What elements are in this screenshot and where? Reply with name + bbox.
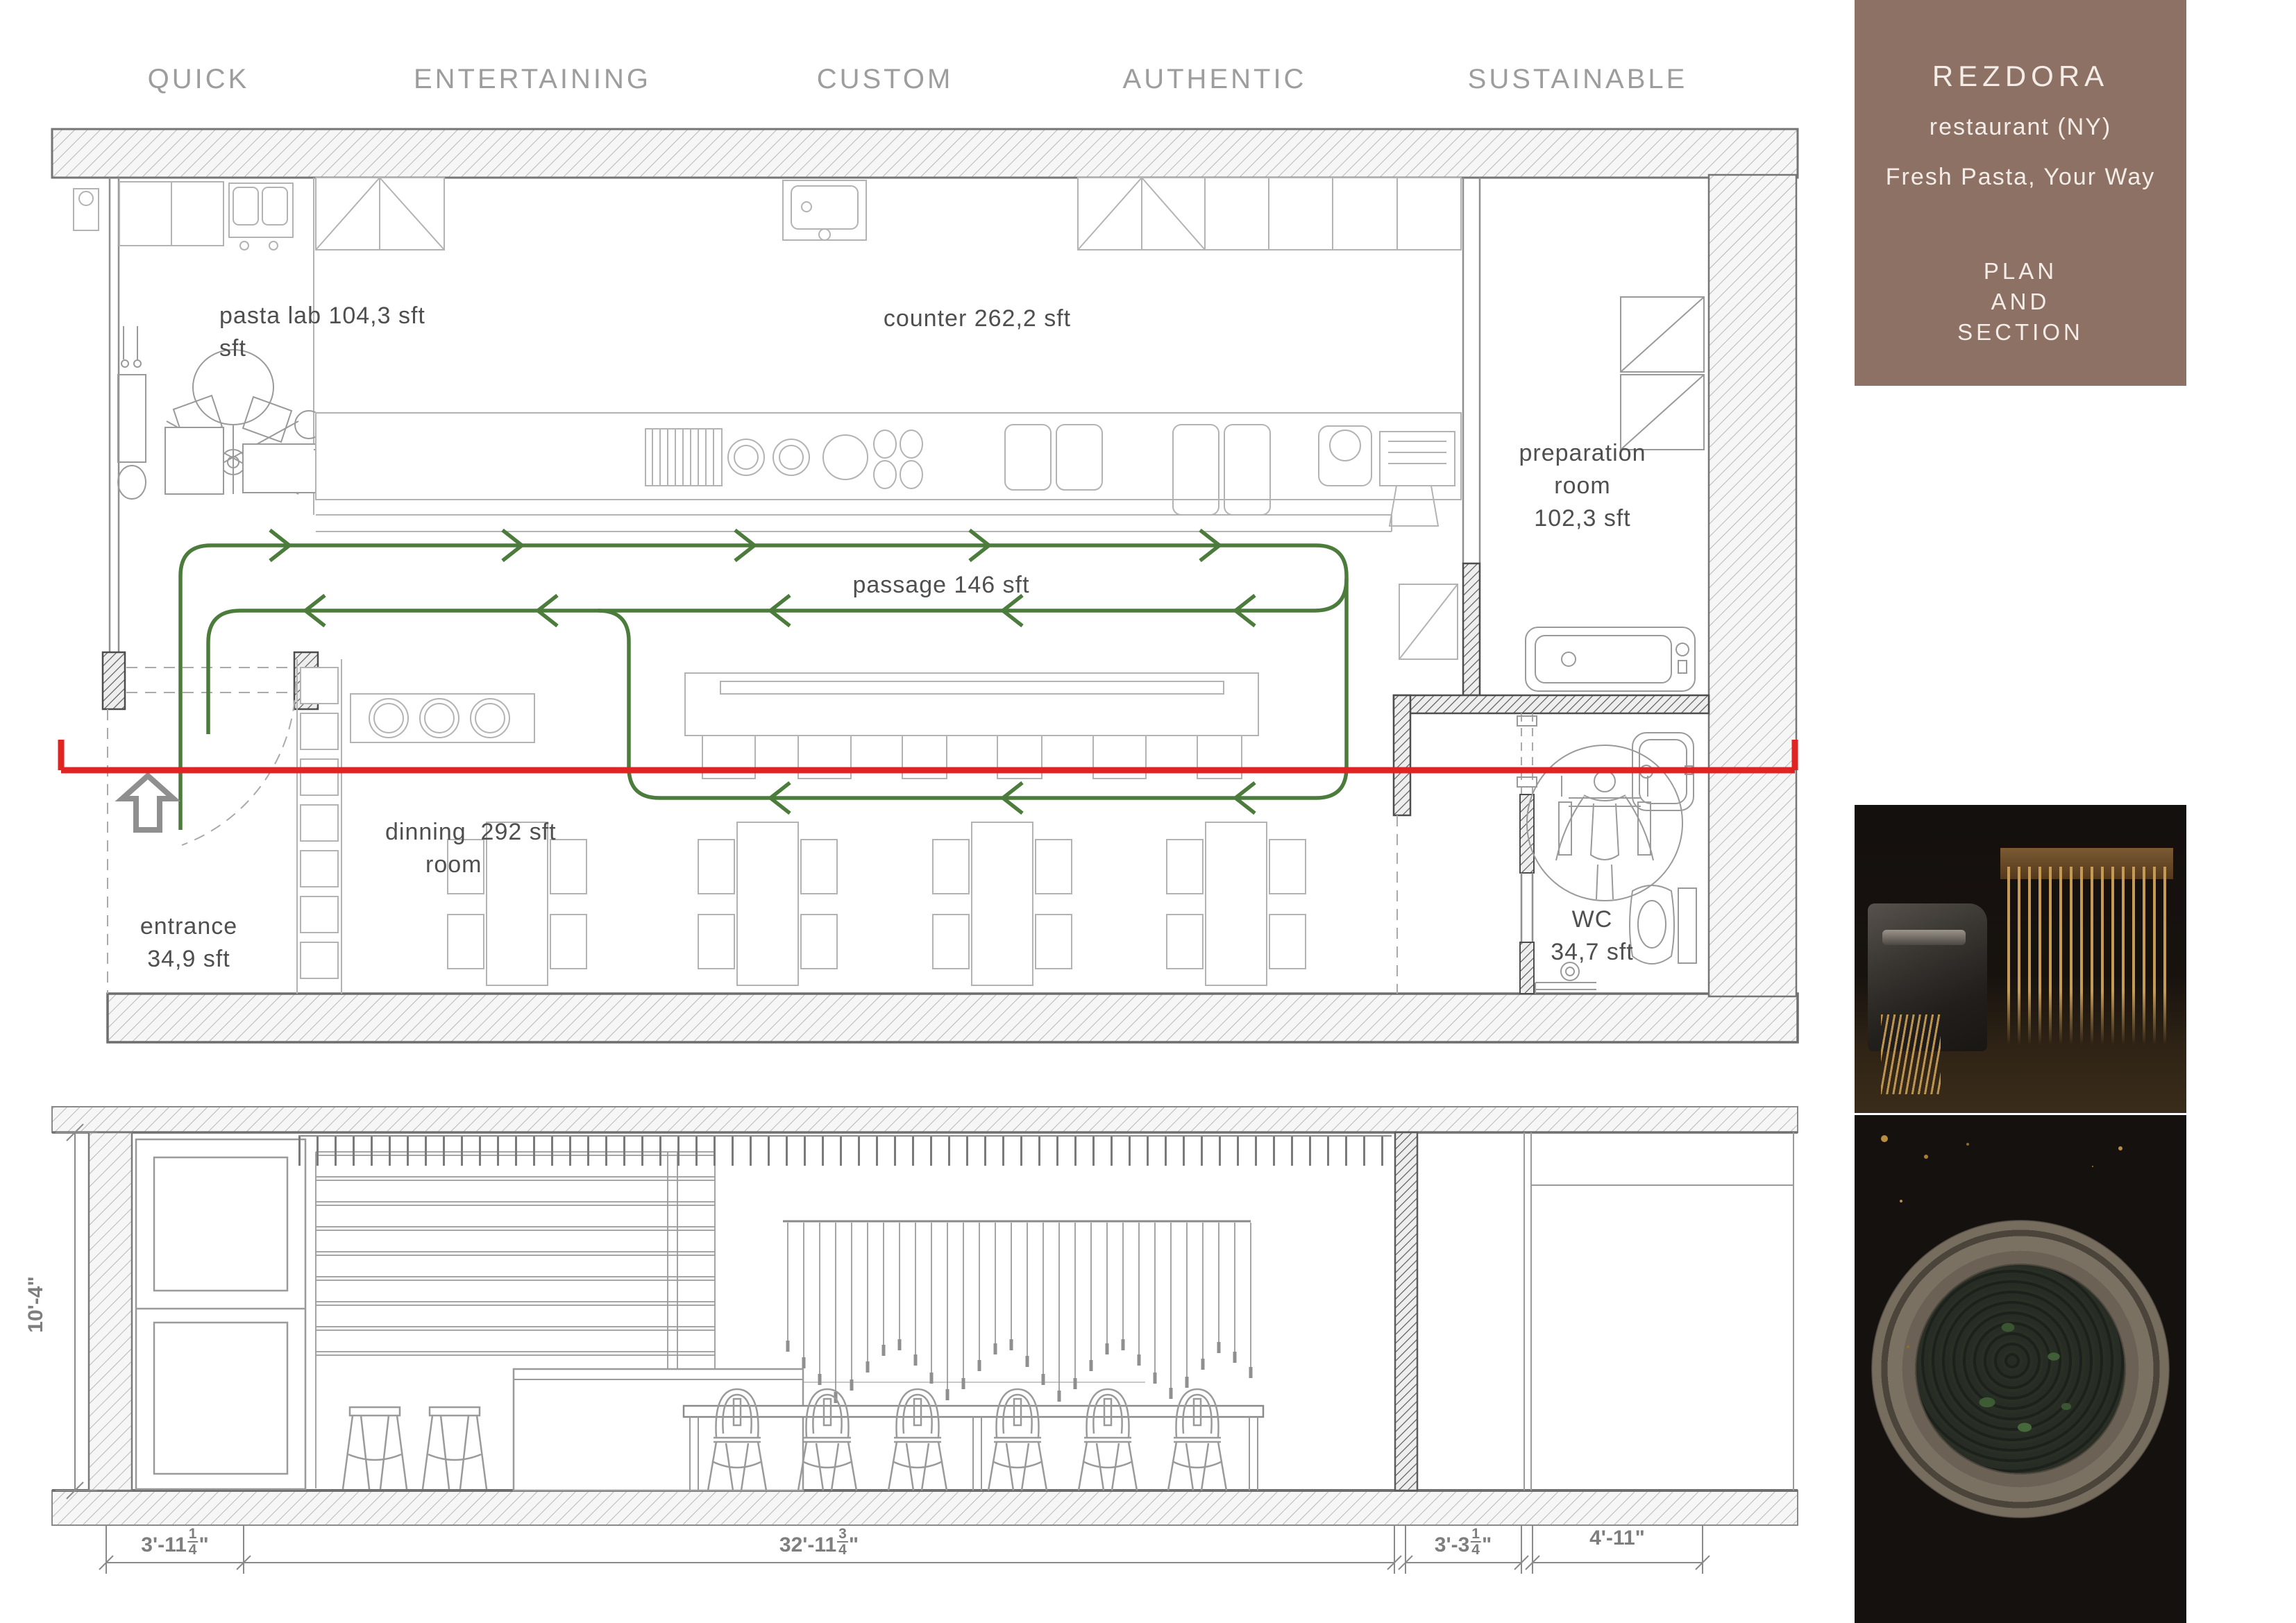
section-right-wall	[1524, 1132, 1793, 1490]
sheet-name-2: AND	[1991, 289, 2050, 315]
label-passage: passage 146 sft	[852, 569, 1029, 602]
label-preparation-room: preparationroom102,3 sft	[1519, 437, 1646, 535]
sheet-name-3: SECTION	[1957, 319, 2084, 346]
section-ceiling-slab	[52, 1107, 1798, 1132]
label-dinning-room: dinning 292 sftroom	[385, 816, 557, 881]
dimension-height: 10'-4"	[24, 1276, 48, 1332]
dimension-label-1: 3'-1114"	[141, 1527, 208, 1557]
label-counter: counter 262,2 sft	[884, 303, 1071, 335]
plan-top-wall	[52, 129, 1798, 178]
wc-top-wall	[1394, 695, 1709, 713]
project-subtitle: restaurant (NY)	[1930, 114, 2111, 141]
section-column	[1395, 1132, 1417, 1490]
section-cabinet	[136, 1139, 305, 1489]
sidebar: REZDORA restaurant (NY) Fresh Pasta, You…	[1855, 0, 2186, 1623]
section-bar-counter	[514, 1369, 803, 1490]
entrance-door-post-left	[103, 652, 125, 709]
section-left-wall	[89, 1132, 132, 1490]
pendant-lights	[783, 1221, 1251, 1403]
dimension-label-3: 3'-314"	[1435, 1527, 1492, 1557]
project-title: REZDORA	[1932, 60, 2109, 93]
counter-equipment	[316, 413, 1461, 659]
sheet-name-1: PLAN	[1984, 258, 2057, 284]
entrance-arrow-icon	[122, 776, 174, 830]
plan-bottom-wall	[108, 994, 1798, 1042]
project-tagline: Fresh Pasta, Your Way	[1886, 164, 2155, 191]
photo-pasta-machine	[1855, 805, 2186, 1113]
prep-room-wall	[1463, 178, 1480, 563]
label-entrance: entrance34,9 sft	[140, 910, 237, 976]
section-drawing	[52, 1107, 1798, 1574]
label-wc: WC34,7 sft	[1551, 903, 1634, 969]
label-pasta-lab: pasta lab 104,3 sftsft	[219, 300, 425, 365]
communal-table	[685, 673, 1258, 736]
presentation-board: QUICK ENTERTAINING CUSTOM AUTHENTIC SUST…	[0, 0, 2296, 1623]
ceiling-ticks	[298, 1135, 1392, 1166]
l-wall	[1394, 695, 1410, 815]
photo-flour-and-eggs	[1855, 386, 2186, 803]
dimension-label-4: 4'-11"	[1589, 1527, 1645, 1550]
photo-squid-ink-pasta	[1855, 1115, 2186, 1623]
plan-right-wall	[1709, 175, 1796, 996]
dimension-label-2: 32'-1134"	[779, 1527, 859, 1557]
title-panel: REZDORA restaurant (NY) Fresh Pasta, You…	[1855, 0, 2186, 386]
section-floor-slab	[52, 1490, 1798, 1525]
upper-cabinets	[74, 178, 1461, 250]
